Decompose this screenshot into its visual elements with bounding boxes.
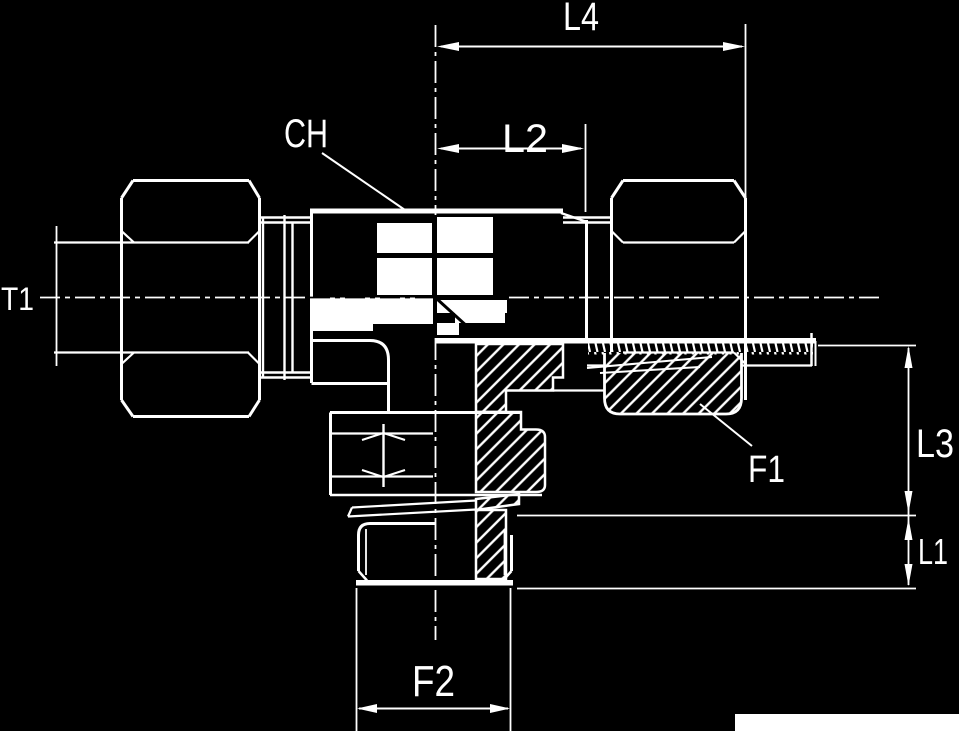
label-l1: L1 (918, 531, 948, 572)
label-f2: F2 (412, 657, 455, 706)
stud-end-edge (356, 580, 513, 586)
watermark-bar (735, 714, 959, 731)
flange-top-edge (436, 338, 816, 344)
label-t1: T1 (1, 281, 34, 317)
label-l3: L3 (916, 422, 954, 466)
body-top-edge (310, 209, 563, 214)
label-l2: L2 (502, 117, 548, 161)
label-f1: F1 (748, 449, 785, 491)
thread-serration-band (588, 344, 813, 355)
nut-section-hatch (605, 353, 742, 414)
label-ch: CH (284, 112, 328, 156)
drawing-canvas: L4 L2 CH T1 (0, 0, 959, 731)
tee-fitting-drawing: L4 L2 CH T1 (0, 0, 959, 731)
label-l4: L4 (563, 0, 599, 39)
